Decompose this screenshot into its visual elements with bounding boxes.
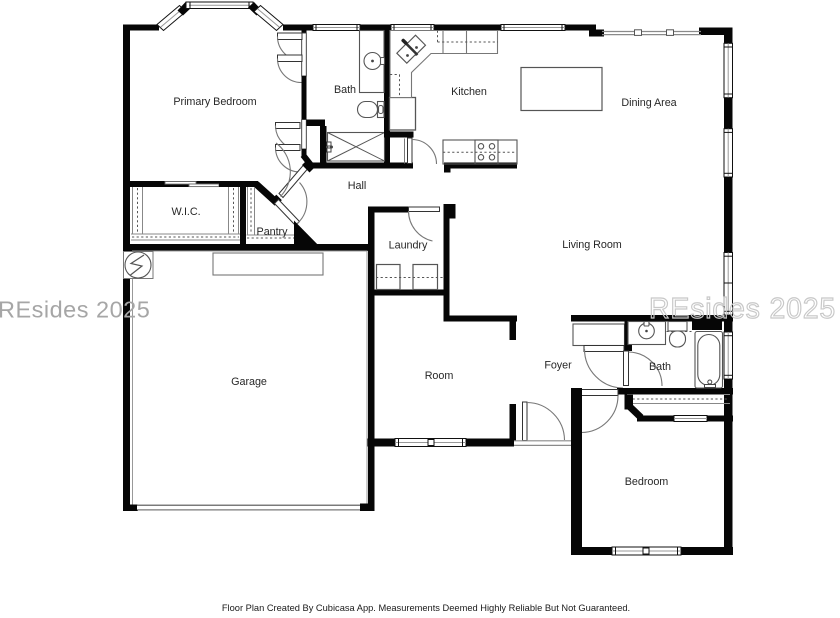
svg-text:Laundry: Laundry — [389, 240, 428, 252]
svg-text:Kitchen: Kitchen — [451, 86, 487, 98]
svg-text:W.I.C.: W.I.C. — [171, 206, 200, 218]
svg-text:Primary Bedroom: Primary Bedroom — [173, 96, 256, 108]
svg-text:REsides 2025: REsides 2025 — [0, 297, 150, 323]
svg-text:Hall: Hall — [348, 180, 366, 192]
svg-text:Room: Room — [425, 370, 454, 382]
svg-text:Foyer: Foyer — [544, 360, 572, 372]
svg-text:Living Room: Living Room — [562, 239, 622, 251]
svg-text:Bedroom: Bedroom — [625, 476, 669, 488]
svg-text:Bath: Bath — [649, 361, 671, 373]
svg-text:Bath: Bath — [334, 84, 356, 96]
svg-text:REsides 2025: REsides 2025 — [649, 293, 836, 325]
svg-text:Dining Area: Dining Area — [621, 97, 676, 109]
svg-text:Garage: Garage — [231, 376, 267, 388]
svg-text:Pantry: Pantry — [257, 226, 289, 238]
svg-text:Floor Plan Created By Cubicasa: Floor Plan Created By Cubicasa App. Meas… — [222, 603, 630, 613]
